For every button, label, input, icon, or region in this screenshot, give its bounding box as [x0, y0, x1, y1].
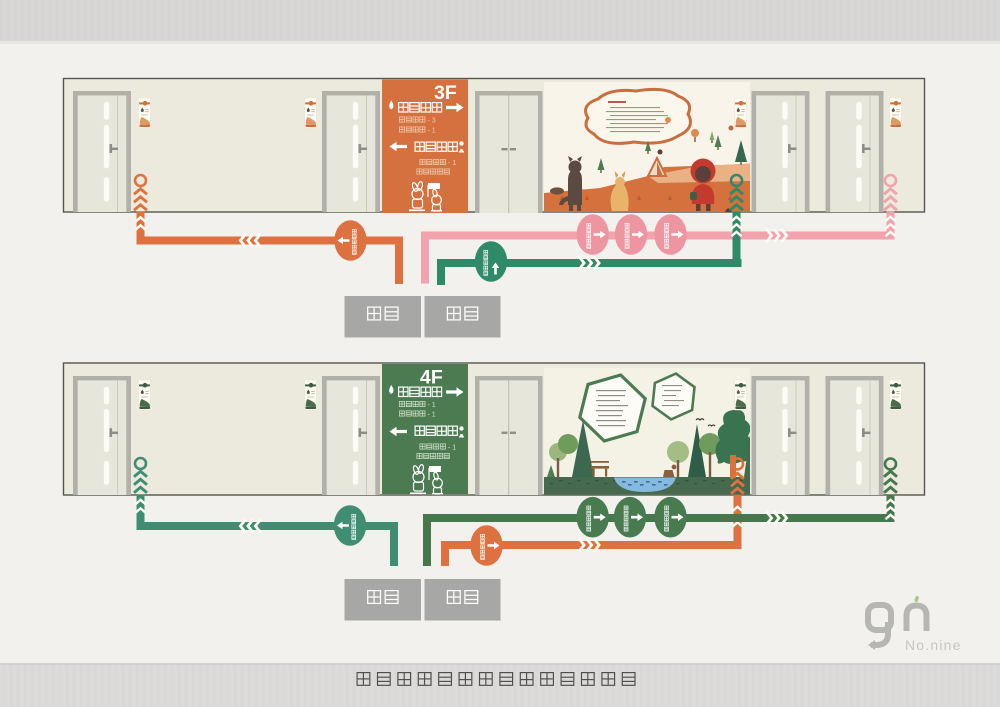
svg-text:- 1: - 1 [448, 445, 456, 452]
svg-text:4F: 4F [420, 367, 443, 389]
svg-text:- 3: - 3 [428, 118, 436, 125]
svg-text:- 1: - 1 [428, 128, 436, 135]
svg-text:- 1: - 1 [428, 402, 436, 409]
svg-text:- 1: - 1 [428, 412, 436, 419]
svg-text:- 1: - 1 [448, 160, 456, 167]
svg-text:3F: 3F [434, 82, 457, 104]
svg-text:No.nine: No.nine [905, 637, 962, 653]
